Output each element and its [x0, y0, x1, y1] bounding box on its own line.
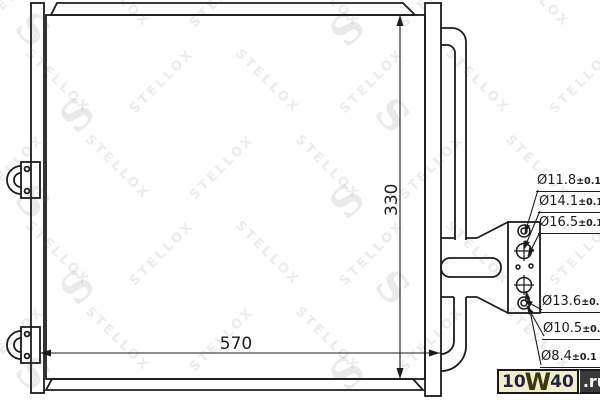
port-tolerance: ±0.1 [572, 352, 597, 363]
logo-text-w: W [525, 370, 551, 394]
bracket-slot [441, 258, 501, 277]
dim-height-text: 330 [382, 184, 402, 216]
port-diameter: Ø13.6 [542, 294, 581, 309]
port-diameter: Ø16.5 [539, 215, 578, 230]
port-tolerance: ±0.1 [578, 218, 600, 229]
dimension-lines [40, 15, 440, 379]
bolt-hole-right [529, 264, 533, 268]
port-label-11-8: Ø11.8±0.1 [536, 172, 600, 192]
port-tolerance: ±0.1 [578, 197, 600, 208]
port-label-8-4: Ø8.4±0.1 [540, 348, 600, 368]
port-label-13-6: Ø13.6±0.1 [541, 293, 600, 313]
catalog-image: 330 570 Ø11.8±0.1 Ø14.1±0.1 Ø16.5±0.1 Ø1… [0, 0, 600, 400]
lower-bracket [7, 327, 40, 363]
port-tolerance: ±0.1 [576, 176, 600, 187]
port-tolerance: ±0.1 [581, 297, 600, 308]
connector-arm [441, 222, 508, 313]
site-logo: 10W40 .ru [497, 369, 600, 394]
logo-text-40: 40 [550, 372, 574, 392]
bolt-hole-left [516, 265, 520, 269]
lower-pipe [441, 297, 466, 371]
port-tolerance: ±0.1 [582, 324, 600, 335]
port-cross-bottom [514, 275, 534, 295]
right-tank [425, 3, 441, 396]
port-label-16-5: Ø16.5±0.1 [538, 214, 600, 234]
top-plate [51, 3, 415, 15]
port-diameter: Ø14.1 [539, 194, 578, 209]
port-ring-top [518, 225, 530, 237]
logo-ru-box: .ru [579, 369, 600, 394]
port-diameter: Ø8.4 [541, 349, 572, 364]
logo-text-10: 10 [502, 372, 526, 392]
dim-width-text: 570 [220, 334, 252, 354]
core-outline [46, 15, 425, 379]
port-diameter: Ø10.5 [543, 321, 582, 336]
port-label-10-5: Ø10.5±0.1 [542, 320, 600, 340]
upper-pipe [441, 28, 466, 240]
logo-10w40-box: 10W40 [497, 369, 579, 394]
port-label-14-1: Ø14.1±0.1 [538, 193, 600, 213]
bottom-plate [46, 379, 423, 390]
upper-bracket [7, 162, 40, 198]
port-diameter: Ø11.8 [537, 173, 576, 188]
condenser-technical-drawing: 330 570 [0, 0, 600, 400]
